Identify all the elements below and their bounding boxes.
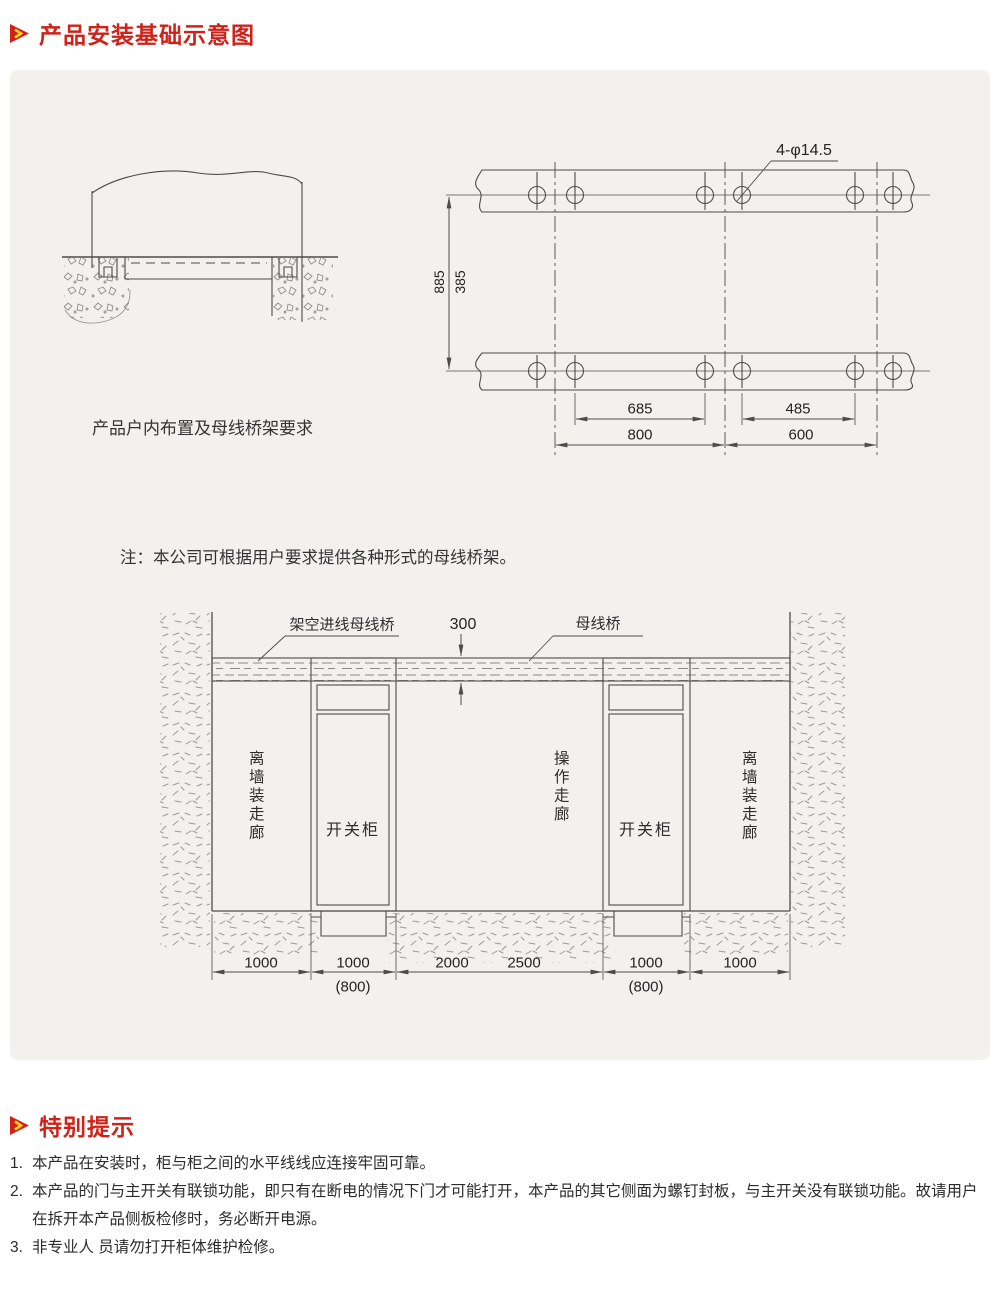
rail-holes-top — [529, 172, 902, 210]
section-header-install: 产品安装基础示意图 — [8, 16, 255, 50]
dim-800: 800 — [627, 428, 652, 443]
notice-item-text: 本产品的门与主开关有联锁功能，即只有在断电的情况下门才可能打开，本产品的其它侧面… — [32, 1178, 988, 1234]
dim-300: 300 — [450, 617, 477, 633]
rail-plan-drawing — [446, 161, 930, 455]
notice-title: 特别提示 — [39, 1108, 135, 1142]
dim-385: 385 — [453, 270, 467, 293]
diagram-linework — [0, 0, 1000, 1300]
notice-list: 1. 本产品在安装时，柜与柜之间的水平线线应连接牢固可靠。 2. 本产品的门与主… — [10, 1150, 988, 1262]
busbar-note: 注：本公司可根据用户要求提供各种形式的母线桥架。 — [120, 544, 516, 568]
notice-item: 1. 本产品在安装时，柜与柜之间的水平线线应连接牢固可靠。 — [10, 1150, 988, 1178]
red-arrow-icon — [8, 22, 30, 45]
dim-2500: 2500 — [507, 956, 540, 971]
cabinet-left-label: 开关柜 — [326, 823, 380, 839]
notice-item: 3. 非专业人 员请勿打开柜体维护检修。 — [10, 1234, 988, 1262]
rail-holes-bottom — [529, 355, 902, 388]
busbar-label: 母线桥 — [575, 617, 620, 632]
dim-1000-a: 1000 — [244, 956, 277, 971]
dim-600: 600 — [788, 428, 813, 443]
corridor-right-label: 离墙装走廊 — [738, 750, 757, 843]
hole-callout-label: 4-φ14.5 — [776, 143, 832, 159]
notice-item-number: 1. — [10, 1150, 32, 1178]
notice-item-number: 3. — [10, 1234, 32, 1262]
dimension-lines — [449, 197, 876, 445]
dim-1000-b: 1000 — [336, 956, 369, 971]
corridor-center-label: 操作走廊 — [550, 750, 569, 824]
dim-2000: 2000 — [435, 956, 468, 971]
page-title: 产品安装基础示意图 — [39, 16, 255, 50]
dim-1000-d: 1000 — [723, 956, 756, 971]
section-drawing-caption: 产品户内布置及母线桥架要求 — [92, 414, 313, 439]
notice-item-text: 本产品在安装时，柜与柜之间的水平线线应连接牢固可靠。 — [32, 1150, 988, 1178]
dim-485: 485 — [785, 402, 810, 417]
dim-885: 885 — [432, 270, 446, 293]
centerlines — [555, 162, 877, 455]
section-header-notice: 特别提示 — [8, 1108, 135, 1142]
foundation-section-drawing — [62, 171, 338, 323]
notice-item-text: 非专业人 员请勿打开柜体维护检修。 — [32, 1234, 988, 1262]
dim-800-alt-b: (800) — [628, 980, 663, 995]
busbar-leaders — [258, 636, 643, 661]
dim-1000-c: 1000 — [629, 956, 662, 971]
dim-800-alt-a: (800) — [335, 980, 370, 995]
corridor-left-label: 离墙装走廊 — [245, 750, 264, 843]
overhead-busbar-label: 架空进线母线桥 — [289, 618, 394, 633]
notice-item-number: 2. — [10, 1178, 32, 1206]
notice-item: 2. 本产品的门与主开关有联锁功能，即只有在断电的情况下门才可能打开，本产品的其… — [10, 1178, 988, 1234]
cabinet-right-label: 开关柜 — [619, 823, 673, 839]
red-arrow-icon — [8, 1114, 30, 1137]
manual-page: { "header": { "title": "产品安装基础示意图" }, "i… — [0, 0, 1000, 1300]
extension-lines — [575, 393, 855, 425]
dim-685: 685 — [627, 402, 652, 417]
